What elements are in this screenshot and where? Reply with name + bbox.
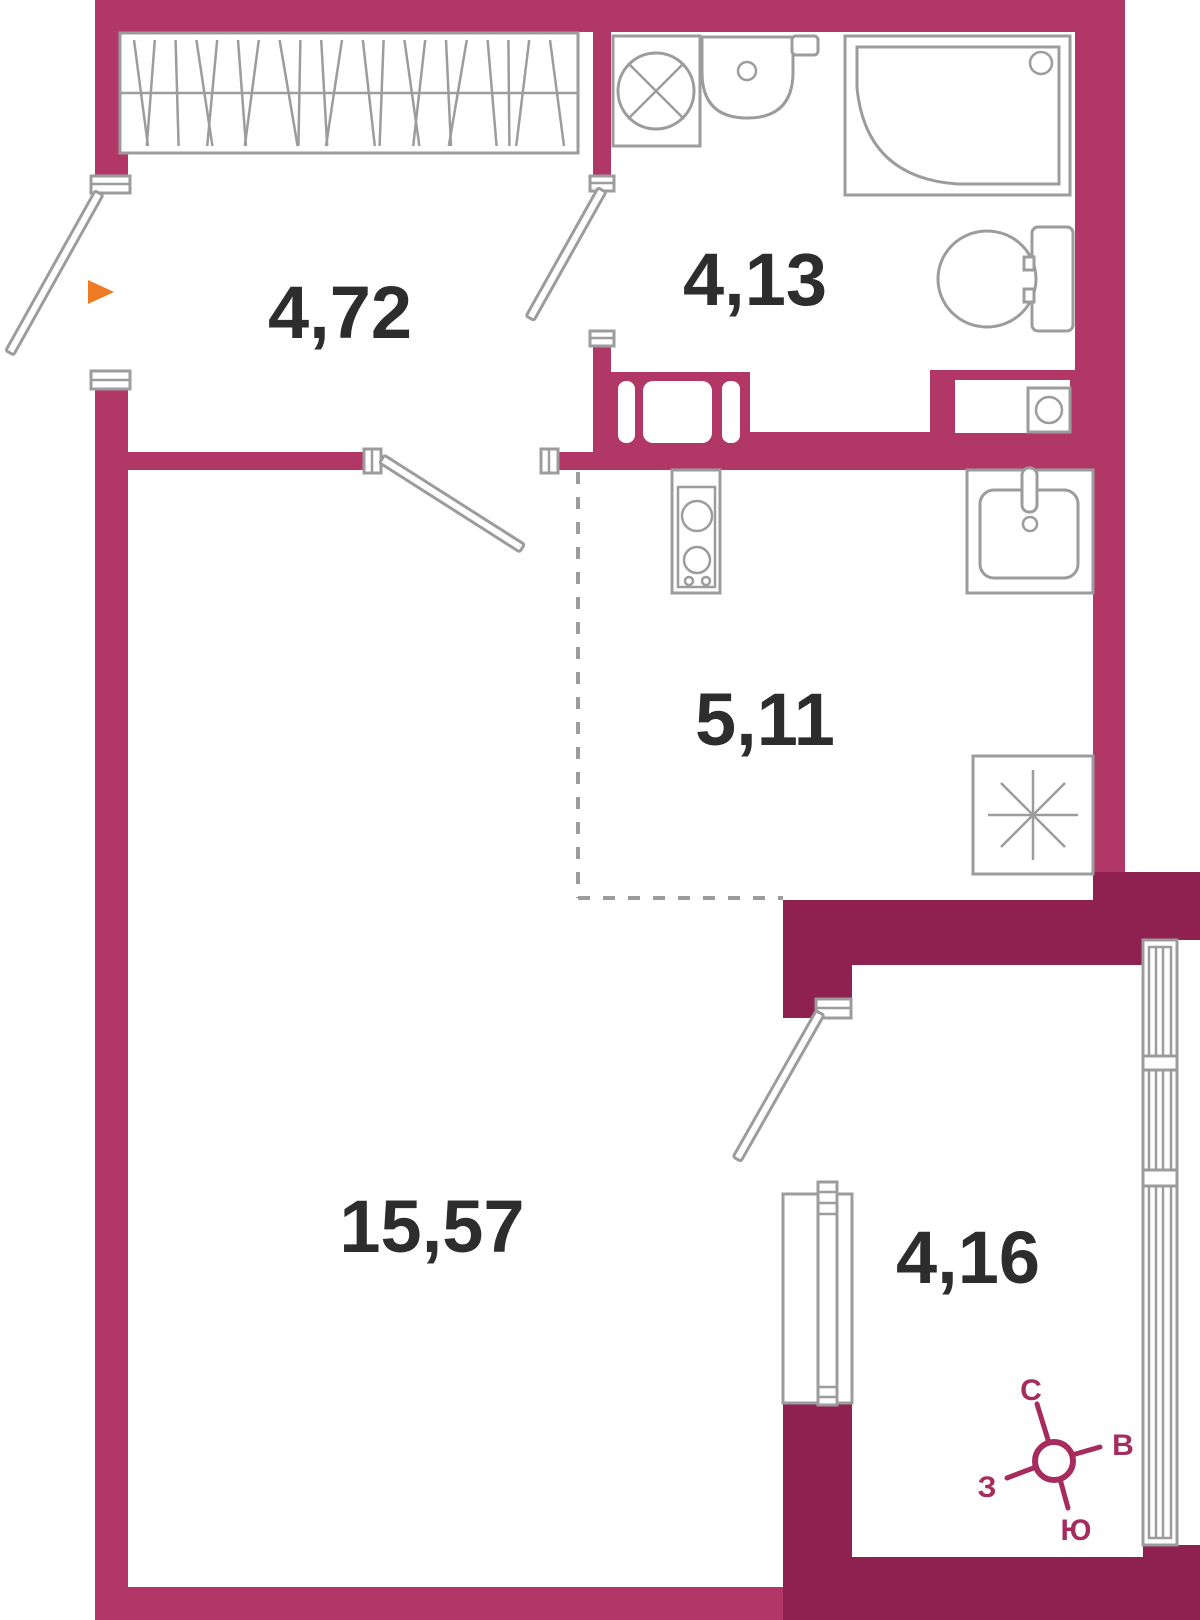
- compass-south-ray: [1060, 1479, 1068, 1508]
- window-icon: [1143, 940, 1177, 1545]
- hallway-area-label: 4,72: [268, 271, 412, 354]
- entrance-jamb-bottom: [91, 371, 130, 389]
- compass-east-ray: [1072, 1447, 1100, 1455]
- compass-west-ray: [1007, 1467, 1036, 1478]
- living-room-door-leaf: [380, 455, 525, 552]
- hall-door-jamb-left: [364, 449, 381, 473]
- toilet-icon: [938, 227, 1073, 331]
- wardrobe: [120, 33, 578, 153]
- living-room-area-label: 15,57: [339, 1185, 524, 1268]
- duct-slot-3: [722, 381, 740, 443]
- balcony-top-wall: [783, 872, 1200, 965]
- bathroom-door-leaf: [526, 188, 606, 321]
- hall-bathroom-wall-lower: [593, 346, 611, 470]
- compass-icon: С В З Ю: [978, 1374, 1134, 1547]
- right-wall: [1075, 32, 1125, 872]
- hall-bathroom-wall-upper: [593, 32, 611, 178]
- bathroom-door-jamb-bottom: [590, 331, 614, 346]
- hall-door-jamb-right: [541, 449, 558, 473]
- compass-hub: [1035, 1442, 1073, 1480]
- entrance-arrow-icon: [88, 280, 114, 304]
- fridge-icon: [973, 756, 1093, 874]
- kitchen-fixtures: [672, 468, 1093, 874]
- kitchen-sink-icon: [967, 468, 1093, 593]
- balcony-door-icon: [783, 1182, 852, 1405]
- compass-north-ray: [1037, 1404, 1049, 1443]
- bathroom-area-label: 4,13: [683, 238, 827, 321]
- compass-west-label: З: [978, 1471, 997, 1504]
- duct-slot-1: [618, 381, 635, 443]
- hall-bottom-wall-right: [557, 452, 593, 470]
- top-wall: [95, 0, 1125, 32]
- entrance-door-leaf: [6, 191, 103, 355]
- compass-north-label: С: [1020, 1374, 1042, 1407]
- kitchen-top-wall: [750, 432, 930, 470]
- balcony-bottom-wall: [783, 1557, 1143, 1620]
- balcony-door-leaf: [733, 1011, 824, 1162]
- duct-slot-2: [643, 381, 712, 443]
- compass-east-label: В: [1112, 1429, 1134, 1462]
- hall-bottom-wall-left: [128, 452, 366, 470]
- shower-icon: [845, 36, 1070, 195]
- washbasin-icon: [702, 36, 818, 118]
- compass-south-label: Ю: [1061, 1514, 1092, 1547]
- floor-plan: 4,72 4,13 5,11 15,57 4,16 С В З Ю: [0, 0, 1200, 1620]
- balcony-right-corner: [1143, 1545, 1200, 1620]
- kitchen-area-label: 5,11: [695, 678, 835, 761]
- door-leaves: [6, 188, 824, 1162]
- stove-icon: [672, 470, 720, 593]
- niche-appliance-icon: [1028, 388, 1070, 432]
- washing-machine-icon: [613, 36, 700, 146]
- bottom-wall: [95, 1587, 783, 1620]
- balcony-area-label: 4,16: [896, 1216, 1040, 1299]
- left-wall-lower: [95, 389, 128, 1620]
